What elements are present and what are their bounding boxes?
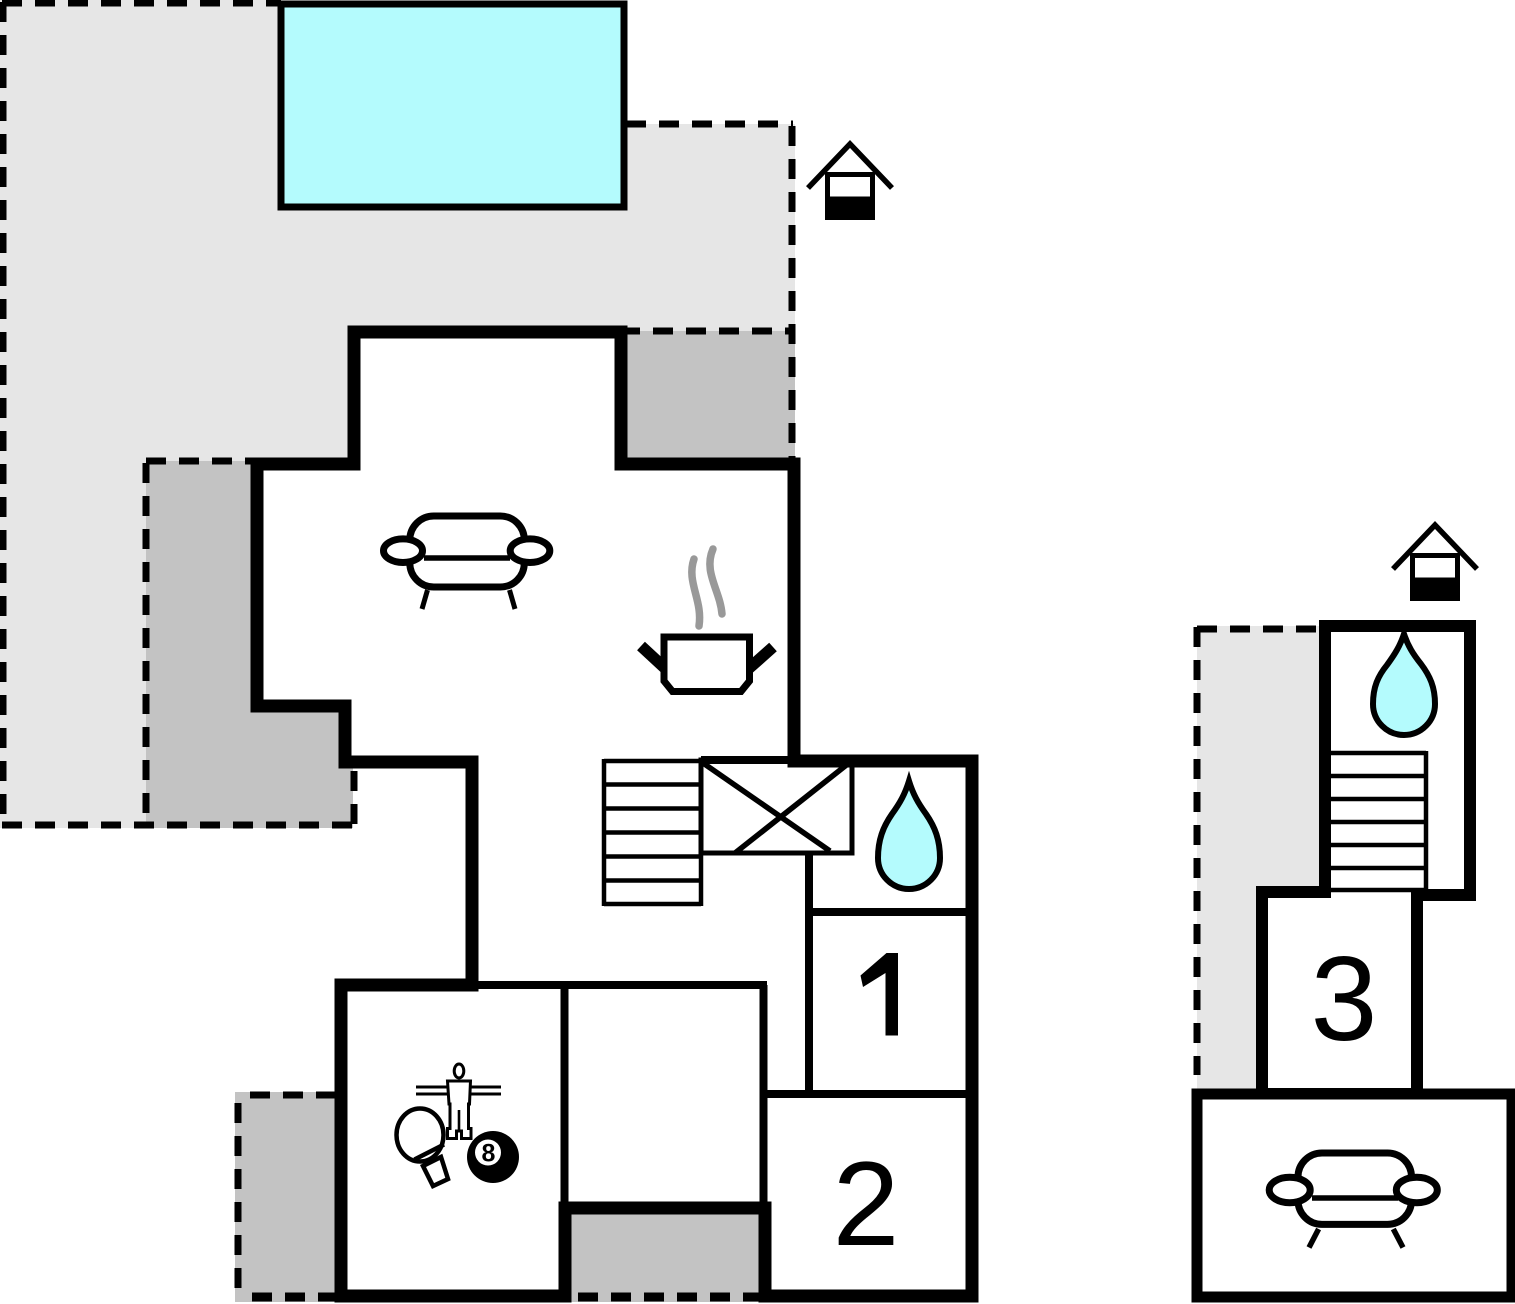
svg-text:3: 3 xyxy=(1311,932,1378,1066)
svg-text:8: 8 xyxy=(482,1140,496,1168)
svg-text:2: 2 xyxy=(833,1137,900,1271)
